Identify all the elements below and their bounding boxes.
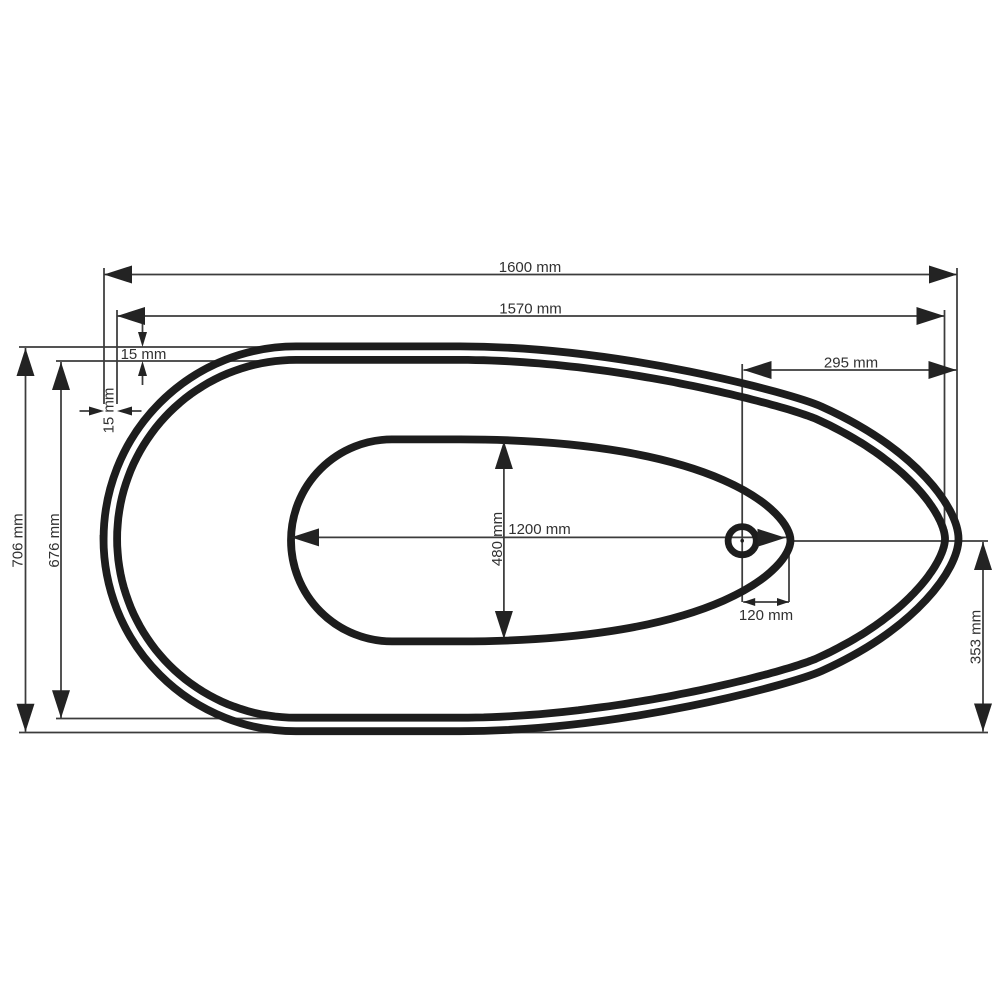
svg-text:15 mm: 15 mm bbox=[121, 346, 167, 363]
svg-text:295 mm: 295 mm bbox=[824, 355, 878, 372]
svg-text:1200 mm: 1200 mm bbox=[508, 521, 571, 538]
svg-text:480 mm: 480 mm bbox=[489, 512, 506, 566]
svg-text:15 mm: 15 mm bbox=[101, 388, 118, 434]
svg-text:120 mm: 120 mm bbox=[739, 607, 793, 624]
svg-text:1570 mm: 1570 mm bbox=[499, 301, 562, 318]
svg-text:706 mm: 706 mm bbox=[10, 513, 27, 567]
svg-text:1600 mm: 1600 mm bbox=[499, 259, 562, 276]
svg-text:676 mm: 676 mm bbox=[46, 513, 63, 567]
svg-text:353 mm: 353 mm bbox=[968, 610, 985, 664]
